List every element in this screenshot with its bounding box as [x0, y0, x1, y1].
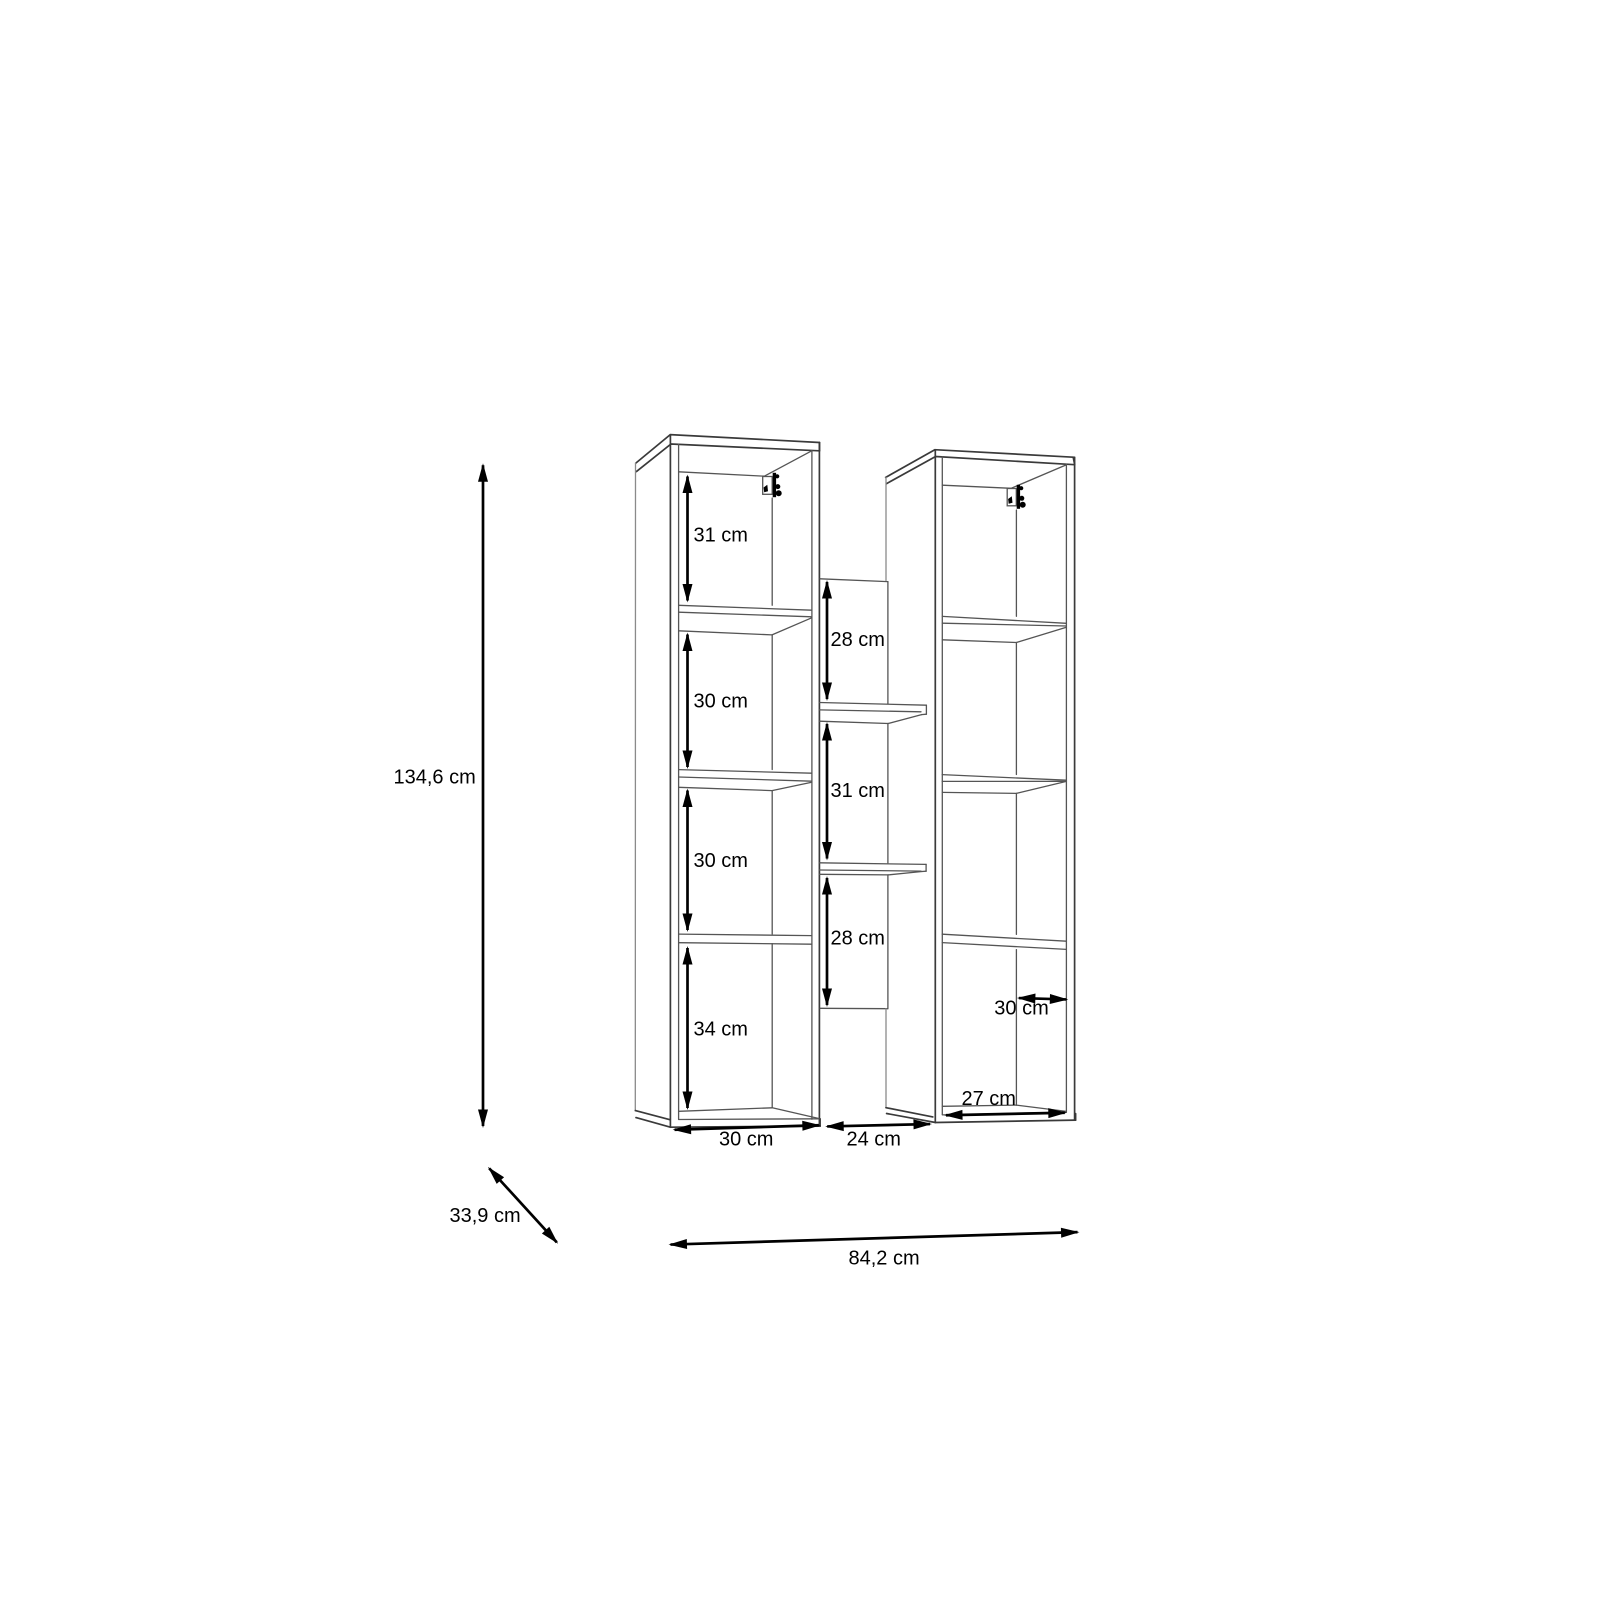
svg-text:30 cm: 30 cm	[694, 691, 748, 713]
svg-text:24 cm: 24 cm	[847, 1129, 901, 1151]
svg-text:31 cm: 31 cm	[694, 525, 748, 547]
svg-text:134,6 cm: 134,6 cm	[394, 767, 476, 789]
svg-text:27 cm: 27 cm	[962, 1088, 1016, 1110]
svg-text:30 cm: 30 cm	[994, 998, 1048, 1020]
svg-text:33,9 cm: 33,9 cm	[450, 1205, 521, 1227]
svg-text:28 cm: 28 cm	[831, 928, 885, 950]
svg-text:30 cm: 30 cm	[719, 1129, 773, 1151]
svg-text:34 cm: 34 cm	[694, 1019, 748, 1041]
svg-text:31 cm: 31 cm	[831, 780, 885, 802]
svg-text:28 cm: 28 cm	[831, 629, 885, 651]
svg-text:84,2 cm: 84,2 cm	[849, 1248, 920, 1270]
svg-text:30 cm: 30 cm	[694, 850, 748, 872]
